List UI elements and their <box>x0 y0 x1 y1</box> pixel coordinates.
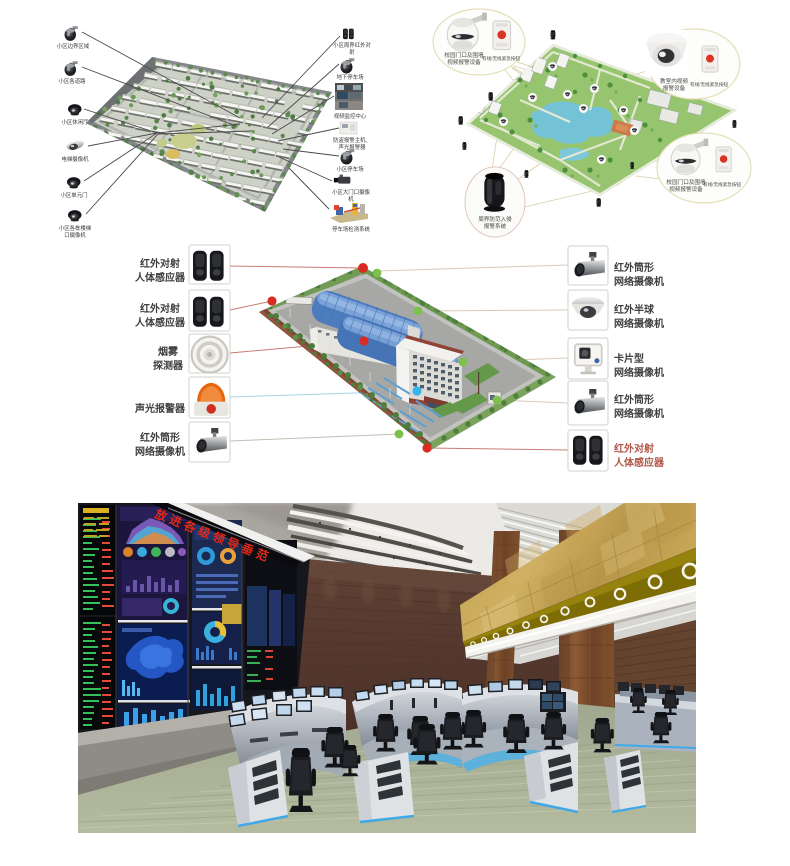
svg-text:视频报警设备: 视频报警设备 <box>669 185 703 193</box>
svg-text:地下停车场: 地下停车场 <box>337 73 365 81</box>
svg-text:卡片型: 卡片型 <box>614 352 644 365</box>
svg-text:小区大门口摄像: 小区大门口摄像 <box>332 188 370 196</box>
svg-text:口摄像机: 口摄像机 <box>64 231 86 239</box>
svg-text:人体感应器: 人体感应器 <box>614 456 665 469</box>
svg-text:射: 射 <box>349 48 355 56</box>
svg-text:视频监控中心: 视频监控中心 <box>334 112 367 120</box>
svg-text:红外对射: 红外对射 <box>140 257 180 270</box>
svg-text:有线/无线紧急按钮: 有线/无线紧急按钮 <box>482 55 520 62</box>
svg-text:小区停车场: 小区停车场 <box>337 165 365 173</box>
svg-text:网络摄像机: 网络摄像机 <box>614 366 664 379</box>
svg-text:红外对射: 红外对射 <box>614 442 654 455</box>
svg-text:红外对射: 红外对射 <box>140 302 180 315</box>
svg-text:小区休闲厅: 小区休闲厅 <box>62 118 90 126</box>
svg-text:报警系统: 报警系统 <box>484 222 507 230</box>
svg-text:红外筒形: 红外筒形 <box>140 431 180 444</box>
svg-text:网络摄像机: 网络摄像机 <box>135 445 185 458</box>
svg-text:红外筒形: 红外筒形 <box>614 393 654 406</box>
svg-text:停车场检测系统: 停车场检测系统 <box>332 225 370 233</box>
svg-text:网络摄像机: 网络摄像机 <box>614 407 664 420</box>
svg-text:电梯摄像机: 电梯摄像机 <box>62 155 90 163</box>
svg-text:小区边界区域: 小区边界区域 <box>57 42 90 50</box>
svg-text:网络摄像机: 网络摄像机 <box>614 317 664 330</box>
svg-text:机: 机 <box>348 195 354 203</box>
svg-text:教室内视频: 教室内视频 <box>660 77 688 85</box>
svg-text:报警设备: 报警设备 <box>663 84 686 92</box>
svg-text:网络摄像机: 网络摄像机 <box>614 275 664 288</box>
svg-text:防盗报警主机、: 防盗报警主机、 <box>333 136 371 144</box>
svg-text:人体感应器: 人体感应器 <box>135 316 186 329</box>
svg-text:小区各道路: 小区各道路 <box>59 77 87 85</box>
svg-text:校园门口及围墙: 校园门口及围墙 <box>666 178 706 186</box>
svg-text:小区各栋楼梯: 小区各栋楼梯 <box>59 224 92 232</box>
svg-text:声光报警器: 声光报警器 <box>134 402 186 415</box>
svg-text:周界防范入侵: 周界防范入侵 <box>478 215 512 223</box>
svg-text:小区周界红外对: 小区周界红外对 <box>333 41 371 49</box>
svg-text:视频报警设备: 视频报警设备 <box>447 58 481 66</box>
svg-text:有线/无线紧急按钮: 有线/无线紧急按钮 <box>703 181 741 188</box>
svg-text:烟雾: 烟雾 <box>158 345 179 358</box>
svg-text:校园门口及围墙: 校园门口及围墙 <box>444 51 484 59</box>
svg-text:小区单元门: 小区单元门 <box>61 191 88 199</box>
svg-text:人体感应器: 人体感应器 <box>135 271 186 284</box>
svg-text:红外半球: 红外半球 <box>614 303 655 316</box>
svg-text:红外筒形: 红外筒形 <box>614 261 654 274</box>
svg-text:探测器: 探测器 <box>153 359 184 372</box>
svg-text:有线/无线紧急按钮: 有线/无线紧急按钮 <box>690 81 728 88</box>
